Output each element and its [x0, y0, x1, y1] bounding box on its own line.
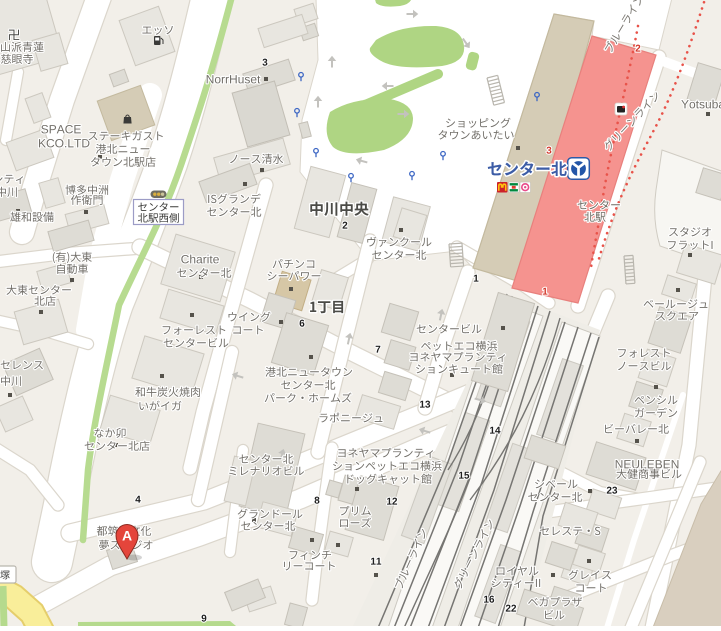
svg-text:A: A [122, 528, 132, 544]
